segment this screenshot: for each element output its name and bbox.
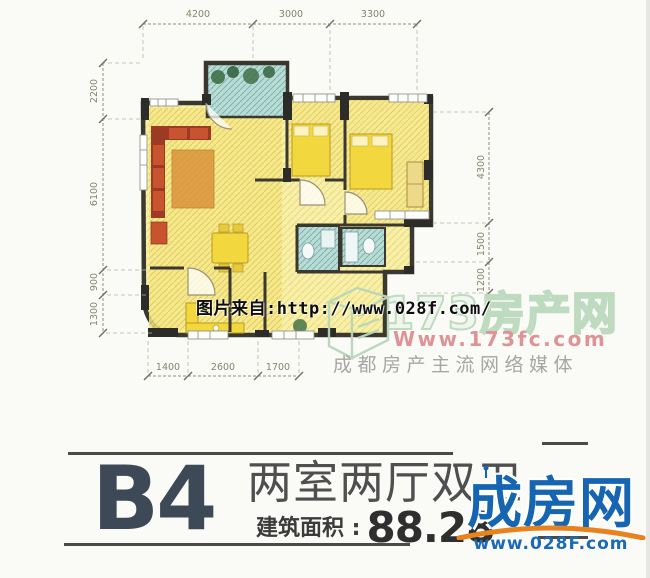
scanned-floorplan-page: 4200 3000 3300 2200 6100 900 1300 4300 1… bbox=[0, 0, 650, 578]
room-bedroom-1 bbox=[289, 100, 343, 178]
title-rule-top-right bbox=[542, 442, 588, 445]
room-balcony bbox=[207, 64, 287, 117]
plant-icon bbox=[243, 68, 259, 84]
unit-code: B4 bbox=[92, 451, 214, 546]
chengfangwang-logo: 成房网 www.028F.com bbox=[452, 474, 650, 554]
watermark-image-source: 图片来自:http://www.028f.com/ bbox=[196, 294, 491, 319]
dim-bottom-1: 1400 bbox=[156, 362, 180, 373]
dim-left-4: 1300 bbox=[89, 302, 100, 326]
plant-icon bbox=[211, 70, 225, 84]
plant-icon bbox=[263, 66, 275, 78]
dim-left-3: 900 bbox=[89, 273, 100, 291]
rug bbox=[172, 150, 214, 208]
shower bbox=[321, 230, 335, 248]
logo-url: www.028F.com bbox=[452, 534, 650, 554]
area-label: 建筑面积 : bbox=[256, 516, 360, 541]
wardrobe bbox=[407, 162, 423, 207]
toilet bbox=[363, 238, 375, 254]
plant-icon bbox=[227, 66, 239, 78]
room-bathroom-2 bbox=[341, 228, 385, 266]
dim-bottom-3: 1700 bbox=[266, 362, 290, 373]
room-bathroom-1 bbox=[297, 226, 339, 271]
dim-right-2: 1500 bbox=[476, 232, 487, 256]
antenna-icon bbox=[478, 465, 494, 479]
dim-top-1: 4200 bbox=[186, 9, 210, 20]
dim-left-2: 6100 bbox=[89, 182, 100, 206]
dining-table bbox=[212, 233, 248, 263]
watermark-site-url: Www.173fc.com bbox=[393, 327, 607, 351]
dim-right-1: 4300 bbox=[476, 155, 487, 179]
dim-top-3: 3300 bbox=[361, 9, 385, 20]
dim-left-1: 2200 bbox=[89, 79, 100, 103]
watermark-slogan: 成都房产主流网络媒体 bbox=[333, 350, 578, 377]
sink bbox=[213, 325, 219, 331]
dim-top-2: 3000 bbox=[279, 9, 303, 20]
toilet bbox=[302, 243, 314, 259]
floor-plan-drawing: 4200 3000 3300 2200 6100 900 1300 4300 1… bbox=[0, 0, 650, 460]
bathtub bbox=[345, 232, 358, 262]
logo-name: 成房网 bbox=[452, 474, 650, 532]
dim-bottom-2: 2600 bbox=[211, 362, 235, 373]
armchair bbox=[151, 222, 167, 244]
